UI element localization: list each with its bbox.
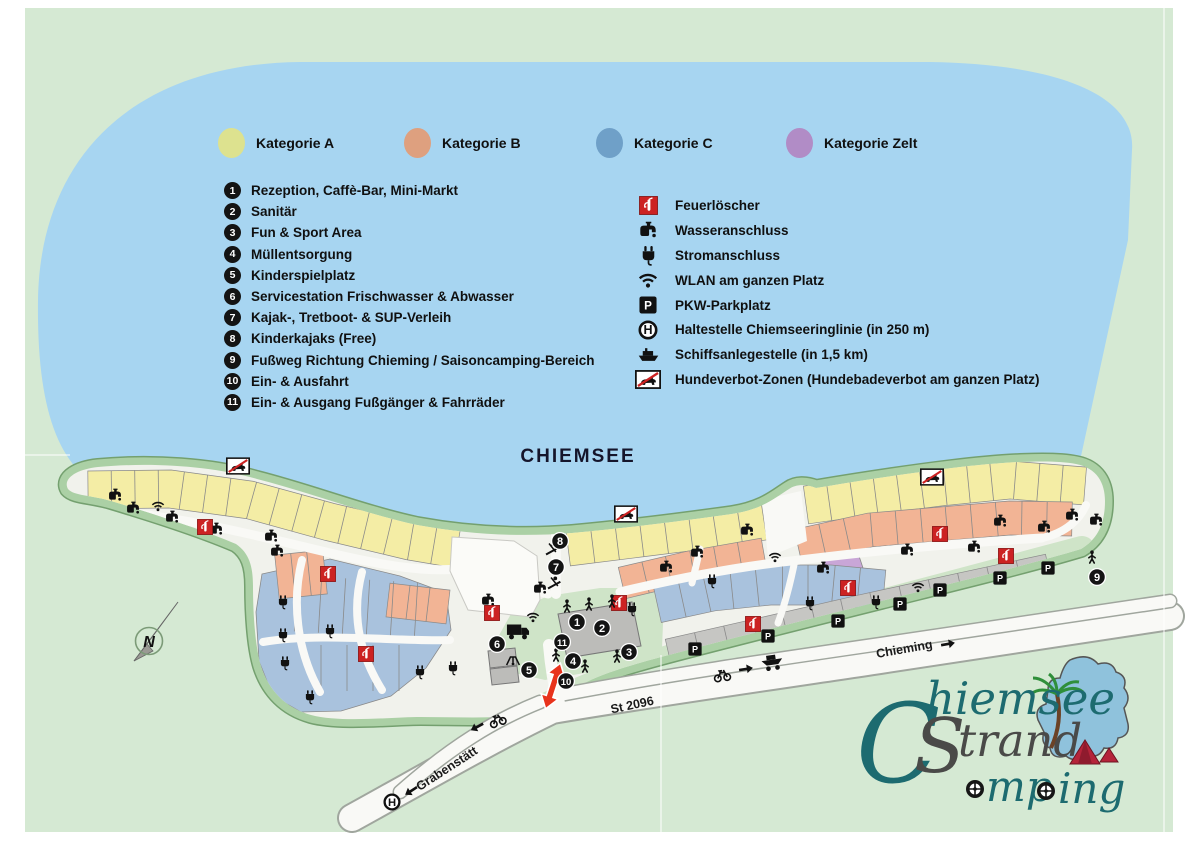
wheel-icon — [966, 780, 984, 798]
category-label: Kategorie Zelt — [824, 135, 917, 151]
icon-legend-label: Wasseranschluss — [675, 223, 789, 238]
no-dog-icon — [921, 469, 943, 485]
legend-item-label: Kinderspielplatz — [251, 268, 355, 283]
legend-item: 1 Rezeption, Caffè-Bar, Mini-Markt — [224, 180, 595, 201]
category-swatch — [786, 128, 813, 158]
map-marker-8: 8 — [552, 533, 569, 550]
legend-item-label: Kinderkajaks (Free) — [251, 331, 376, 346]
svg-text:2: 2 — [599, 623, 605, 635]
map-marker-9: 9 — [1089, 569, 1106, 586]
svg-text:1: 1 — [574, 617, 580, 629]
icon-legend-label: Stromanschluss — [675, 248, 780, 263]
map-marker-3: 3 — [621, 644, 638, 661]
legend-item-number: 11 — [224, 394, 241, 411]
map-marker-11: 11 — [554, 634, 571, 651]
svg-text:4: 4 — [570, 656, 577, 668]
icon-legend-label: Haltestelle Chiemseeringlinie (in 250 m) — [675, 322, 929, 337]
svg-text:3: 3 — [626, 647, 632, 659]
svg-text:9: 9 — [1094, 572, 1100, 584]
category-item: Kategorie A — [218, 127, 334, 159]
svg-text:6: 6 — [494, 639, 500, 651]
legend-item: 5 Kinderspielplatz — [224, 265, 595, 286]
map-marker-7: 7 — [548, 559, 565, 576]
category-swatch — [596, 128, 623, 158]
map-marker-4: 4 — [565, 653, 582, 670]
category-swatch — [218, 128, 245, 158]
logo-word-ing: ing — [1058, 764, 1125, 813]
fireext-icon — [745, 616, 760, 631]
ship-icon — [633, 343, 663, 366]
svg-text:11: 11 — [557, 638, 568, 649]
fireext-icon — [320, 566, 335, 581]
category-item: Kategorie Zelt — [786, 127, 917, 159]
bus-stop-icon — [385, 795, 400, 810]
legend-item: 10 Ein- & Ausfahrt — [224, 371, 595, 392]
map-marker-6: 6 — [489, 636, 506, 653]
icon-legend-row: Haltestelle Chiemseeringlinie (in 250 m) — [633, 317, 1040, 342]
legend-item: 8 Kinderkajaks (Free) — [224, 328, 595, 349]
parking-icon — [688, 642, 701, 655]
svg-text:5: 5 — [526, 665, 532, 677]
map-marker-2: 2 — [594, 620, 611, 637]
map-marker-10: 10 — [558, 673, 575, 690]
category-label: Kategorie A — [256, 135, 334, 151]
legend-item: 11 Ein- & Ausgang Fußgänger & Fahrräder — [224, 392, 595, 413]
legend-item-number: 4 — [224, 246, 241, 263]
fireext-icon — [932, 526, 947, 541]
icon-legend-row: Hundeverbot-Zonen (Hundebadeverbot am ga… — [633, 367, 1040, 392]
legend-item-label: Fun & Sport Area — [251, 225, 362, 240]
icon-legend: Feuerlöscher Wasseranschluss Stromanschl… — [633, 193, 1040, 392]
legend-item-number: 6 — [224, 288, 241, 305]
fireext-icon — [484, 605, 499, 620]
legend-item-label: Fußweg Richtung Chieming / Saisoncamping… — [251, 353, 595, 368]
icon-legend-row: WLAN am ganzen Platz — [633, 268, 1040, 293]
fireext-icon — [633, 196, 663, 215]
no-dog-icon — [633, 370, 663, 389]
map-marker-5: 5 — [521, 662, 538, 679]
numbered-legend: 1 Rezeption, Caffè-Bar, Mini-Markt 2 San… — [224, 180, 595, 413]
legend-item-number: 7 — [224, 309, 241, 326]
icon-legend-label: Feuerlöscher — [675, 198, 760, 213]
legend-item: 9 Fußweg Richtung Chieming / Saisoncampi… — [224, 350, 595, 371]
icon-legend-row: PKW-Parkplatz — [633, 293, 1040, 318]
wheel-icon — [1037, 782, 1055, 800]
category-label: Kategorie B — [442, 135, 521, 151]
category-item: Kategorie C — [596, 127, 713, 159]
logo-word-trand: trand — [958, 714, 1082, 767]
fireext-icon — [998, 548, 1013, 563]
svg-text:7: 7 — [553, 562, 559, 574]
fireext-icon — [197, 519, 212, 534]
category-label: Kategorie C — [634, 135, 713, 151]
icon-legend-row: Stromanschluss — [633, 243, 1040, 268]
parking-icon — [993, 571, 1006, 584]
legend-item: 7 Kajak-, Tretboot- & SUP-Verleih — [224, 307, 595, 328]
no-dog-icon — [615, 506, 637, 522]
parking-icon — [831, 614, 844, 627]
compass-north-label: N — [143, 634, 155, 651]
lake-label: CHIEMSEE — [520, 446, 635, 467]
parking-icon — [761, 629, 774, 642]
legend-item-number: 8 — [224, 330, 241, 347]
legend-item-label: Kajak-, Tretboot- & SUP-Verleih — [251, 310, 451, 325]
icon-legend-row: Schiffsanlegestelle (in 1,5 km) — [633, 342, 1040, 367]
legend-item-number: 9 — [224, 352, 241, 369]
faucet-icon — [633, 219, 663, 241]
icon-legend-label: PKW-Parkplatz — [675, 298, 771, 313]
category-item: Kategorie B — [404, 127, 521, 159]
svg-text:10: 10 — [561, 677, 572, 688]
category-swatch — [404, 128, 431, 158]
legend-item-number: 1 — [224, 182, 241, 199]
fireext-icon — [358, 646, 373, 661]
legend-item-number: 10 — [224, 373, 241, 390]
icon-legend-label: Schiffsanlegestelle (in 1,5 km) — [675, 347, 868, 362]
fireext-icon — [840, 580, 855, 595]
legend-item-number: 5 — [224, 267, 241, 284]
fireext-icon — [611, 595, 626, 610]
legend-item-label: Ein- & Ausfahrt — [251, 374, 349, 389]
map-marker-1: 1 — [569, 614, 586, 631]
legend-item: 2 Sanitär — [224, 201, 595, 222]
parking-icon — [933, 583, 946, 596]
parking-icon — [893, 597, 906, 610]
legend-item-label: Ein- & Ausgang Fußgänger & Fahrräder — [251, 395, 505, 410]
wifi-icon — [633, 269, 663, 291]
legend-item: 4 Müllentsorgung — [224, 244, 595, 265]
icon-legend-label: WLAN am ganzen Platz — [675, 273, 824, 288]
legend-item: 3 Fun & Sport Area — [224, 222, 595, 243]
parking-icon — [1041, 561, 1054, 574]
svg-text:8: 8 — [557, 536, 563, 548]
legend-item-label: Müllentsorgung — [251, 247, 352, 262]
bus-stop-icon — [633, 320, 663, 340]
legend-item-number: 3 — [224, 224, 241, 241]
legend-item-label: Sanitär — [251, 204, 297, 219]
no-dog-icon — [227, 458, 249, 474]
icon-legend-row: Feuerlöscher — [633, 193, 1040, 218]
logo: C hiemsee S trand mp ing — [856, 657, 1128, 813]
legend-item-number: 2 — [224, 203, 241, 220]
parking-icon — [633, 296, 663, 314]
campground-map-page: P H — [0, 0, 1200, 848]
legend-item-label: Rezeption, Caffè-Bar, Mini-Markt — [251, 183, 458, 198]
icon-legend-label: Hundeverbot-Zonen (Hundebadeverbot am ga… — [675, 372, 1040, 387]
plug-icon — [633, 245, 663, 266]
legend-item: 6 Servicestation Frischwasser & Abwasser — [224, 286, 595, 307]
icon-legend-row: Wasseranschluss — [633, 218, 1040, 243]
legend-item-label: Servicestation Frischwasser & Abwasser — [251, 289, 514, 304]
